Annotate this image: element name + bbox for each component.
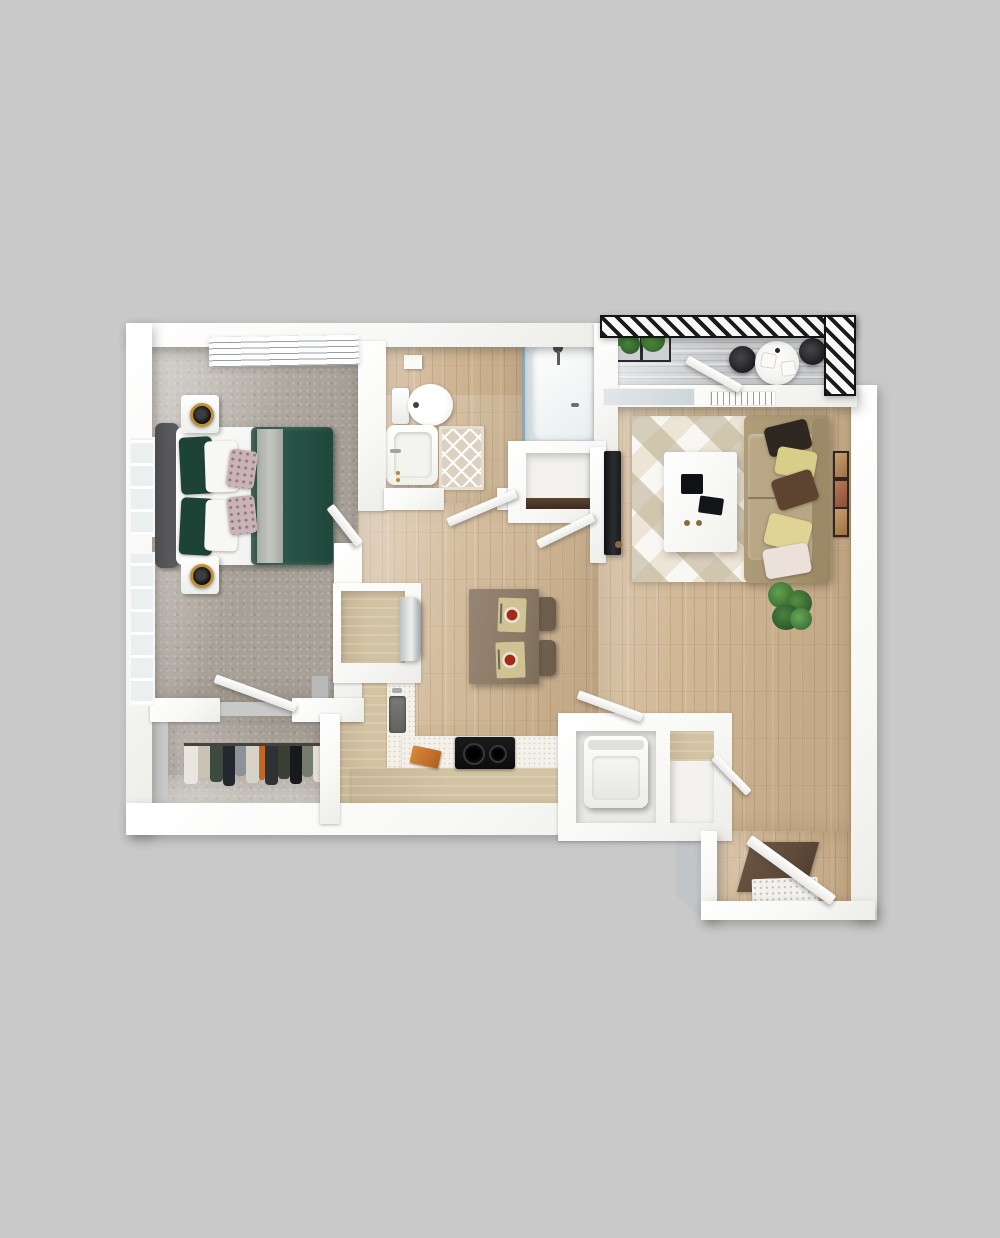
vanity-sink: [386, 425, 438, 485]
coffee-table: [664, 452, 737, 552]
kitchen-sink: [389, 696, 406, 733]
clothes-item: [210, 746, 223, 782]
faucet: [390, 449, 401, 453]
sliding-glass-door: [603, 388, 695, 406]
clothes-item: [302, 746, 313, 777]
bedroom-window: [129, 552, 155, 706]
shower-arm: [557, 351, 560, 365]
clothes-item: [223, 746, 235, 786]
wall-frame: [833, 451, 849, 479]
exterior-wall-right: [851, 385, 877, 920]
closet-east-wall: [320, 714, 340, 824]
burner: [463, 743, 485, 765]
cup: [775, 348, 780, 353]
tablet: [681, 474, 703, 494]
clothes-item: [246, 746, 259, 783]
plate: [502, 652, 519, 669]
pantry-floor: [341, 591, 405, 663]
entry-bottom-wall: [701, 901, 875, 920]
gold-accessory: [396, 471, 400, 475]
folded-throw-blanket: [257, 429, 283, 563]
toilet-bowl: [408, 384, 453, 426]
table-lamp: [190, 564, 214, 588]
washer: [584, 736, 648, 808]
wall-frame: [833, 507, 849, 537]
clothes-item: [198, 746, 210, 778]
toilet-tank: [392, 388, 409, 424]
balcony-table: [755, 341, 799, 385]
washer-lid: [592, 756, 640, 800]
decor-knob: [684, 520, 690, 526]
wall-panel: [311, 675, 329, 699]
place-setting: [497, 598, 526, 633]
place-mat: [760, 352, 777, 369]
speaker-knob: [615, 541, 622, 548]
shower-valve: [571, 403, 579, 407]
refrigerator: [399, 597, 421, 661]
accent-pillow: [226, 495, 258, 536]
plate: [504, 607, 521, 624]
clothes-item: [235, 746, 246, 776]
shower-pan: [532, 344, 594, 440]
cooktop: [455, 737, 515, 769]
bathroom-south-wall-a: [384, 488, 444, 510]
hanging-clothes: [184, 746, 332, 786]
linen-shelf: [526, 498, 590, 509]
bath-mat: [439, 426, 484, 490]
bathroom-cabinet: [404, 355, 422, 369]
dining-chair: [536, 640, 556, 676]
gold-accessory: [396, 478, 400, 482]
utensil: [498, 649, 501, 669]
shower: [522, 337, 601, 447]
plant-foliage: [790, 608, 812, 630]
hvac-vent: [710, 391, 776, 406]
place-mat: [780, 360, 797, 377]
remote: [698, 495, 724, 515]
bedroom-window: [129, 437, 155, 537]
kitchen-cabinet-front: [352, 768, 565, 805]
accent-pillow: [225, 448, 258, 490]
toilet-flush-button: [413, 402, 419, 408]
storage-bay: [670, 731, 714, 823]
clothes-item: [278, 746, 290, 779]
balcony-chair: [799, 338, 826, 365]
bedroom-closet-wall-a: [150, 698, 220, 722]
floor-plan-render: [0, 0, 1000, 1238]
bedroom-bathroom-wall: [358, 341, 386, 511]
table-lamp: [190, 403, 214, 427]
linen-niche-interior: [526, 453, 590, 509]
burner: [489, 745, 507, 763]
clothes-item: [184, 746, 198, 784]
dining-chair: [536, 597, 556, 631]
entry-wall-shadow-face: [676, 835, 703, 919]
kitchen-faucet: [392, 688, 402, 693]
balcony-railing-right: [824, 315, 856, 396]
place-setting: [495, 642, 525, 679]
storage-bay-floor: [670, 731, 714, 761]
balcony-railing-top: [600, 315, 856, 338]
washer-control-panel: [588, 740, 644, 750]
decor-knob: [696, 520, 702, 526]
utensil: [500, 604, 503, 624]
bedroom-top-window: [209, 335, 360, 368]
clothes-item: [290, 746, 302, 784]
tv: [604, 451, 621, 555]
potted-plant: [762, 578, 818, 634]
balcony-chair: [729, 346, 756, 373]
clothes-item: [265, 746, 278, 785]
wall-frame: [833, 479, 849, 509]
